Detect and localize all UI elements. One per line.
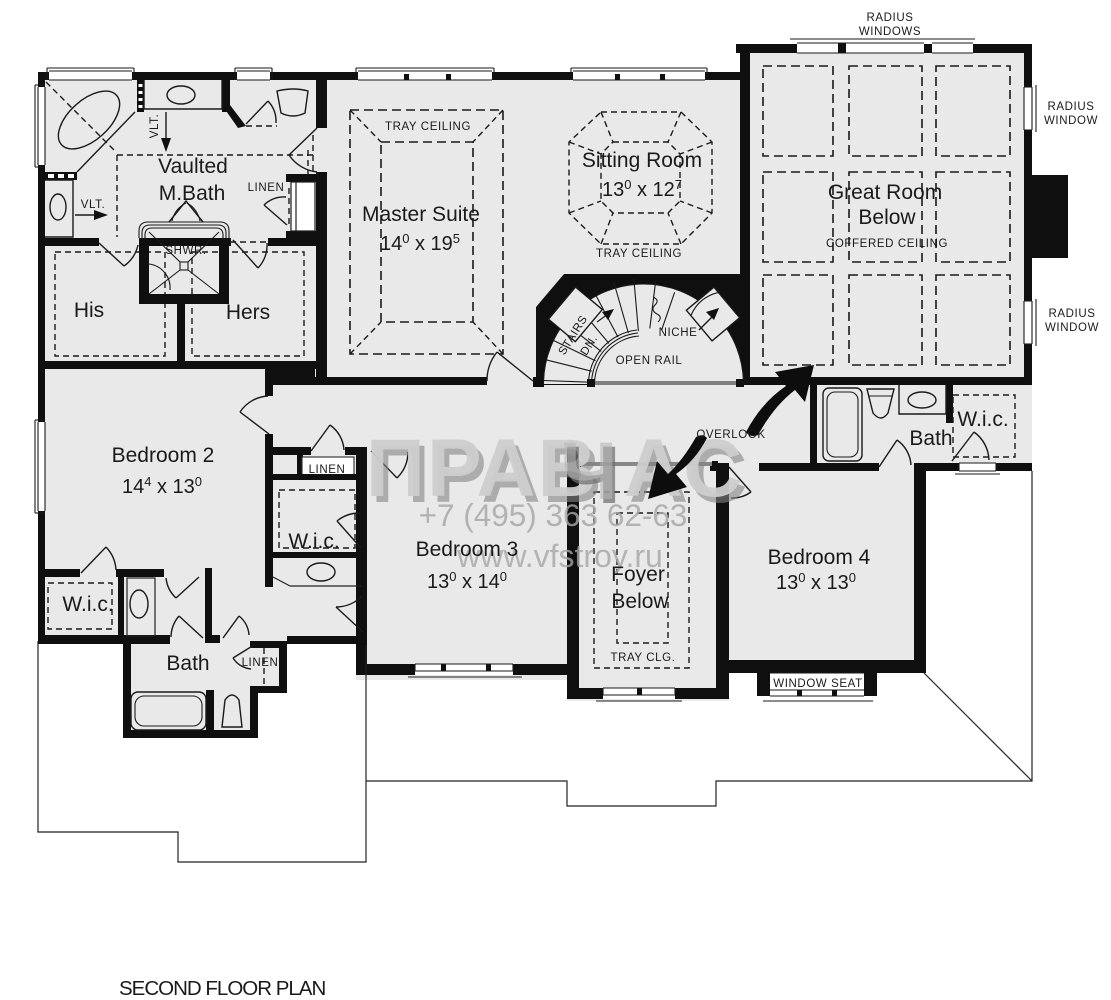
svg-text:TRAY CEILING: TRAY CEILING bbox=[596, 248, 682, 260]
svg-text:TRAY CLG.: TRAY CLG. bbox=[610, 652, 675, 664]
svg-text:SHWR.: SHWR. bbox=[165, 245, 206, 257]
svg-text:Foyer: Foyer bbox=[611, 563, 665, 586]
svg-text:NICHE: NICHE bbox=[659, 327, 698, 339]
svg-text:Bath: Bath bbox=[166, 652, 209, 675]
svg-text:M.Bath: M.Bath bbox=[159, 182, 226, 205]
svg-text:SECOND FLOOR PLAN: SECOND FLOOR PLAN bbox=[119, 977, 325, 1000]
svg-text:VLT.: VLT. bbox=[81, 199, 106, 211]
svg-text:RADIUS: RADIUS bbox=[866, 12, 913, 24]
svg-text:RADIUS: RADIUS bbox=[1048, 308, 1095, 320]
svg-text:Bedroom 4: Bedroom 4 bbox=[768, 546, 871, 569]
svg-text:Bedroom 3: Bedroom 3 bbox=[416, 538, 519, 561]
svg-text:TRAY CEILING: TRAY CEILING bbox=[385, 121, 471, 133]
svg-text:W.i.c.: W.i.c. bbox=[288, 530, 339, 553]
svg-text:WINDOW SEAT: WINDOW SEAT bbox=[773, 678, 862, 690]
svg-text:LINEN: LINEN bbox=[242, 657, 279, 669]
svg-text:Master Suite: Master Suite bbox=[362, 203, 480, 226]
svg-text:Below: Below bbox=[858, 206, 916, 229]
svg-text:Sitting Room: Sitting Room bbox=[582, 149, 702, 172]
svg-text:LINEN: LINEN bbox=[248, 182, 285, 194]
svg-text:130 x 140: 130 x 140 bbox=[427, 569, 507, 593]
svg-text:Great Room: Great Room bbox=[828, 181, 942, 204]
svg-text:Hers: Hers bbox=[226, 301, 270, 324]
svg-text:W.i.c.: W.i.c. bbox=[62, 593, 113, 616]
svg-text:WINDOW: WINDOW bbox=[1044, 115, 1098, 127]
svg-text:W.i.c.: W.i.c. bbox=[957, 408, 1008, 431]
svg-text:130 x 127: 130 x 127 bbox=[602, 177, 682, 201]
svg-text:Bath: Bath bbox=[909, 427, 952, 450]
svg-text:LINEN: LINEN bbox=[309, 464, 346, 476]
svg-text:140 x 195: 140 x 195 bbox=[380, 231, 460, 255]
svg-text:His: His bbox=[74, 299, 104, 322]
svg-text:VLT.: VLT. bbox=[149, 114, 161, 139]
svg-text:OPEN RAIL: OPEN RAIL bbox=[616, 355, 683, 367]
svg-text:COFFERED CEILING: COFFERED CEILING bbox=[826, 238, 948, 250]
svg-text:WINDOWS: WINDOWS bbox=[859, 26, 921, 38]
svg-text:Below: Below bbox=[611, 590, 669, 613]
svg-text:130 x 130: 130 x 130 bbox=[776, 570, 856, 594]
svg-text:144 x 130: 144 x 130 bbox=[122, 474, 202, 498]
svg-text:WINDOW: WINDOW bbox=[1045, 322, 1099, 334]
svg-text:+7 (495) 363 62-63: +7 (495) 363 62-63 bbox=[419, 497, 688, 533]
svg-text:Bedroom 2: Bedroom 2 bbox=[112, 444, 215, 467]
svg-text:RADIUS: RADIUS bbox=[1047, 101, 1094, 113]
svg-text:Vaulted: Vaulted bbox=[158, 155, 228, 178]
svg-text:OVERLOOK: OVERLOOK bbox=[696, 429, 765, 441]
